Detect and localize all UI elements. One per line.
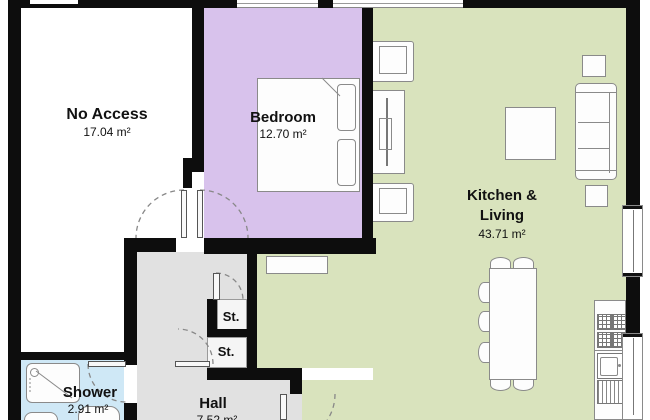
- door-leaf-storage-top: [213, 273, 220, 300]
- sink: [597, 353, 625, 379]
- faucet-icon: [618, 364, 621, 367]
- shower-head-icon: [30, 368, 39, 377]
- wall-hall-top: [124, 238, 176, 252]
- wall-jog: [183, 158, 204, 172]
- window-pane-line: [237, 3, 318, 4]
- armchair-seat: [379, 188, 407, 214]
- radiator: [266, 256, 328, 274]
- coffee-table: [505, 107, 556, 160]
- dining-chair: [490, 379, 511, 391]
- sofa-cushion-line1: [578, 122, 610, 123]
- side-table-top: [582, 55, 606, 77]
- wall-hall-left-lower: [124, 403, 137, 420]
- wall-left: [8, 0, 21, 420]
- window-right-upper: [622, 205, 643, 277]
- kitchen-living-room-bottom: [302, 380, 373, 420]
- wall-hall-left-upper: [124, 252, 137, 365]
- door-leaf-no-access: [181, 190, 187, 238]
- room-area-shower: 2.91 m²: [68, 402, 109, 416]
- tv-screen: [379, 118, 392, 150]
- door-leaf-shower: [88, 361, 126, 367]
- dining-chair: [513, 379, 534, 391]
- armchair-top: [370, 41, 414, 82]
- no-access-room-lower: [21, 238, 124, 352]
- window-cap: [623, 206, 642, 209]
- room-area-bedroom: 12.70 m²: [259, 127, 306, 141]
- room-label-no-access: No Access: [66, 106, 147, 124]
- tv-cabinet: [371, 90, 405, 174]
- wall-storage-divider: [207, 329, 247, 337]
- dining-table: [489, 268, 537, 380]
- room-area-no-access: 17.04 m²: [83, 125, 130, 139]
- window-right-lower: [622, 333, 643, 420]
- sofa: [575, 83, 617, 180]
- wall-top: [8, 0, 640, 8]
- floor-plan: No Access 17.04 m² Bedroom 12.70 m² Kitc…: [0, 0, 650, 420]
- toilet: [24, 412, 58, 420]
- counter-divider: [595, 350, 625, 351]
- storage-label-top: St.: [223, 309, 240, 324]
- sofa-armrest-bottom: [576, 170, 616, 171]
- room-label-hall: Hall: [199, 395, 227, 412]
- side-table-bottom: [585, 185, 608, 207]
- sofa-armrest-top: [576, 92, 616, 93]
- storage-label-bottom: St.: [218, 344, 235, 359]
- window-kitchen-top: [333, 0, 463, 8]
- sink-basin: [600, 357, 618, 376]
- door-leaf-hall-kitchen: [280, 394, 287, 420]
- armchair-seat: [379, 46, 407, 74]
- wall-hall-kitchen-bottom: [207, 368, 302, 380]
- room-label-shower: Shower: [63, 384, 117, 401]
- pillow-bottom: [337, 139, 356, 186]
- window-pane-line: [633, 210, 634, 272]
- wall-noaccess-shower: [21, 352, 124, 360]
- window-cap: [623, 334, 642, 337]
- door-leaf-bedroom: [197, 190, 203, 238]
- door-leaf-storage-bottom: [175, 361, 210, 367]
- sofa-cushion-line2: [578, 148, 610, 149]
- wall-storage-right: [247, 252, 257, 380]
- window-pane-line: [633, 338, 634, 415]
- window-top-notch: [30, 0, 78, 4]
- wall-noaccess-bedroom: [192, 7, 204, 158]
- window-bedroom-top: [237, 0, 318, 8]
- hob-burner: [612, 314, 626, 330]
- pillow-top: [337, 84, 356, 131]
- wall-hall-door-stub: [290, 380, 302, 394]
- wall-bedroom-kitchen: [362, 7, 373, 254]
- armchair-bottom: [370, 183, 414, 222]
- room-area-hall: 7.52 m²: [197, 413, 238, 420]
- room-label-kitchen-line2: Living: [480, 207, 524, 224]
- window-pane-line: [333, 3, 463, 4]
- hob-burner: [597, 314, 612, 330]
- room-area-kitchen: 43.71 m²: [478, 227, 525, 241]
- hob-burner: [597, 332, 612, 348]
- room-label-bedroom: Bedroom: [250, 109, 316, 126]
- room-label-kitchen-line1: Kitchen &: [467, 187, 537, 204]
- wall-bedroom-bottom: [204, 238, 376, 254]
- sofa-back-line: [609, 92, 610, 173]
- wall-jog-stub: [183, 172, 192, 188]
- window-cap: [623, 273, 642, 276]
